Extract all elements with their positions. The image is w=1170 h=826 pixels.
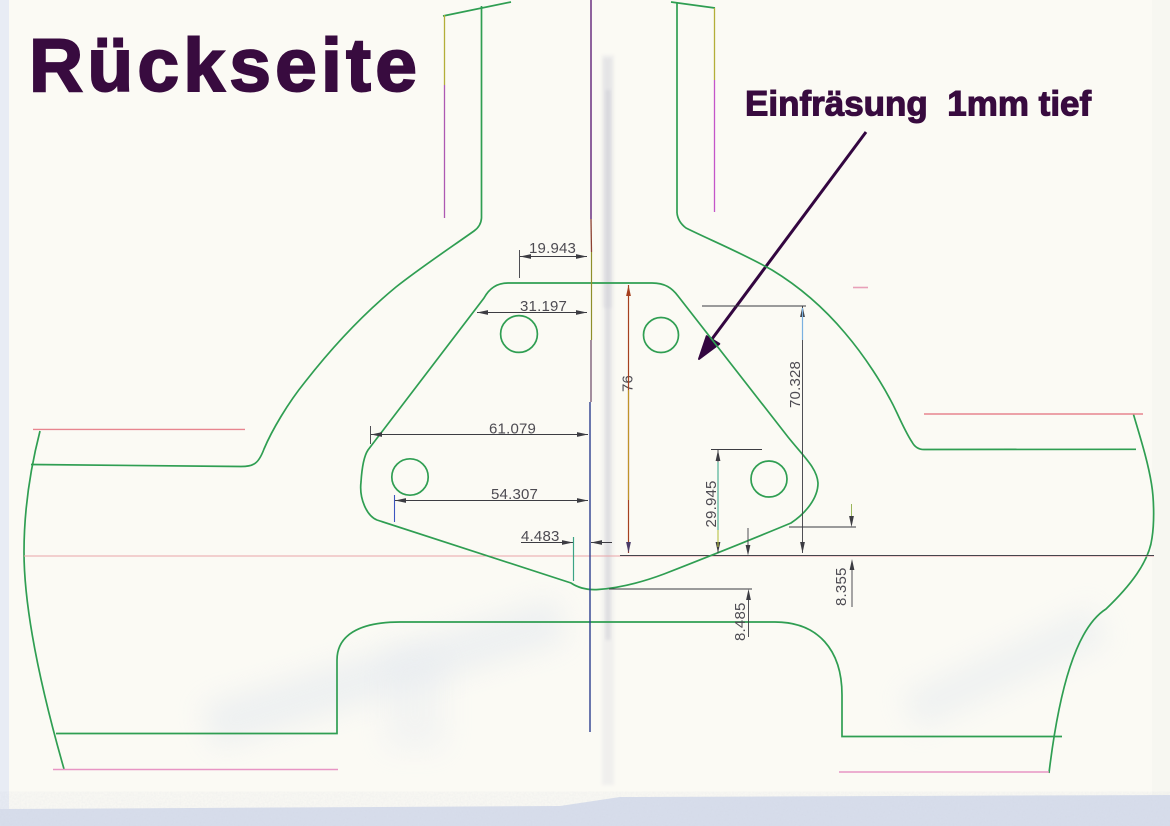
svg-text:Rückseite: Rückseite [29,23,421,107]
svg-text:Einfräsung 1mm tief: Einfräsung 1mm tief [745,85,1092,124]
svg-text:8.355: 8.355 [833,567,850,606]
svg-text:8.485: 8.485 [732,602,749,641]
svg-text:19.943: 19.943 [529,240,576,257]
svg-text:70.328: 70.328 [787,361,804,408]
svg-text:61.079: 61.079 [489,421,536,438]
